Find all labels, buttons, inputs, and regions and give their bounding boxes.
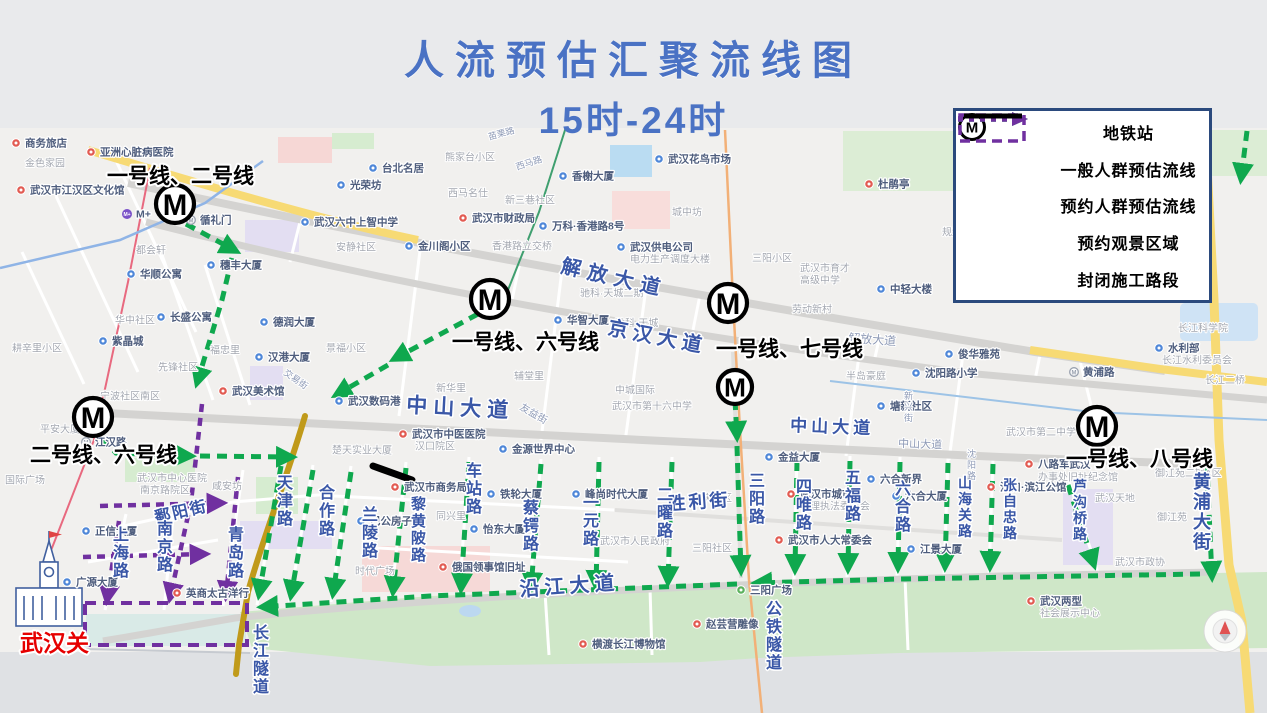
street-label: 四唯路 (796, 479, 813, 532)
street-label: 长江隧道 (253, 623, 270, 696)
station-line-label: 一号线、二号线 (107, 164, 254, 188)
street-label: 黄浦大街 (1192, 471, 1211, 552)
poi: 咸安坊 (212, 480, 242, 493)
poi: 武汉市人大常委会 (775, 534, 873, 547)
poi: 金色家园 (25, 157, 65, 170)
poi: 都会轩 (136, 244, 166, 257)
poi-label: 武汉市商务局 (404, 481, 467, 494)
poi-label: 沈阳路小学 (925, 367, 978, 380)
street-label: 新兴街 (904, 390, 913, 423)
poi: 武汉市第十六中学 (612, 400, 692, 413)
poi-label: 华智大厦 (567, 314, 609, 327)
poi: 汉口院区 (415, 440, 455, 453)
poi: 华中社区 (115, 314, 155, 327)
poi-label: 金色家园 (25, 157, 65, 170)
poi-label: 金益大厦 (777, 451, 820, 464)
street-label: 三阳路 (749, 473, 766, 526)
station-line-label: 一号线、七号线 (716, 337, 863, 361)
metro-entrance-m: M (1072, 370, 1077, 376)
poi-label: 俊华雅苑 (958, 348, 1000, 361)
poi-label: 宁波社区南区 (100, 390, 160, 403)
poi: 万科·香港路8号 (539, 220, 625, 233)
poi-label: 横渡长江博物馆 (592, 638, 666, 651)
poi-label: 台北名居 (382, 162, 424, 175)
street-label: 南京路 (157, 519, 174, 574)
poi: 长江科学院 (1178, 322, 1228, 335)
metro-station-marker: M (471, 280, 509, 318)
poi-label: 劳动新村 (792, 303, 832, 316)
poi-label: 都会轩 (136, 244, 166, 257)
poi: 武汉市中医医院 (399, 428, 486, 441)
metro-station-m: M (478, 284, 503, 317)
poi-label: 熊家台小区 (445, 151, 495, 164)
metro-station-m: M (716, 288, 741, 321)
poi-label: 三阳社区 (692, 542, 732, 555)
poi: 西马名仕 (448, 187, 488, 200)
poi: 三阳社区 (692, 542, 732, 555)
poi-label: 华中社区 (115, 314, 155, 327)
poi-label: 紫晶城 (112, 335, 144, 348)
legend-row-viewing-area: 预约观景区域 (961, 225, 1204, 259)
poi: 亚洲心脏病医院 (87, 146, 174, 159)
poi-label: 景福小区 (326, 342, 366, 355)
poi-label: 御江苑 (1157, 511, 1187, 524)
poi-label: 西马名仕 (448, 187, 488, 200)
poi-label: 香榭大厦 (571, 170, 614, 183)
street-label: 合作路 (319, 483, 336, 538)
poi: 先锋社区 (158, 361, 198, 374)
poi-label: 香港路立交桥 (492, 240, 552, 253)
poi: 安静社区 (336, 241, 376, 254)
poi: 武汉市政协 (1115, 556, 1165, 569)
poi-label: 华顺公寓 (140, 268, 182, 281)
poi-label: 半岛豪庭 (846, 370, 886, 383)
poi-label: 武汉供电公司 (630, 241, 693, 254)
poi-label: 长盛公寓 (170, 311, 212, 324)
poi-label: 武汉美术馆 (232, 385, 285, 398)
poi-label: 福忠里 (210, 344, 240, 357)
poi: 俄国领事馆旧址 (439, 561, 526, 574)
poi-label: 武汉市财政局 (472, 212, 535, 225)
legend-label: 预约观景区域 (1053, 230, 1204, 254)
metro-station-m: M (163, 189, 188, 222)
street-label: 山海关路 (958, 475, 973, 539)
poi: 社会展示中心 (1040, 607, 1100, 620)
compass-widget[interactable] (1204, 610, 1246, 652)
poi-label: 三阳广场 (750, 584, 792, 597)
poi: 福忠里 (210, 344, 240, 357)
poi-label: M+ (136, 209, 151, 221)
poi-label: 武汉数码港 (348, 395, 401, 408)
poi-label: 武汉两型 (1040, 595, 1082, 608)
street-label: 沈阳路 (967, 448, 976, 481)
poi: 高级中学 (800, 274, 840, 287)
poi-label: 国际广场 (5, 474, 45, 487)
poi: 横渡长江博物馆 (579, 638, 666, 651)
metro-station-m: M (1085, 411, 1110, 444)
poi: 新三巷社区 (505, 194, 555, 207)
poi: 城中坊 (672, 206, 702, 219)
poi-label: 中城国际 (615, 384, 655, 397)
metro-station-marker: M (1078, 407, 1116, 445)
poi-label: 时代广场 (355, 565, 395, 578)
poi-label: 怡东大厦 (483, 523, 525, 536)
poi-label: 武汉市第二中学 (1006, 426, 1076, 439)
poi: 武汉市中心医院 (137, 472, 207, 485)
slide-canvas: 武汉关 商务旅店金色家园亚洲心脏病医院武汉市江汉区文化馆都会轩华顺公寓长盛公寓华… (0, 0, 1267, 713)
poi: 武汉市第二中学 (1006, 426, 1076, 439)
poi-label: 长江科学院 (1178, 322, 1228, 335)
poi: 半岛豪庭 (846, 370, 886, 383)
poi-label: 武汉天地 (1095, 492, 1135, 505)
station-line-label: 二号线、六号线 (30, 443, 177, 467)
poi-label: 同兴里 (436, 511, 466, 523)
poi-label: 电力生产调度大楼 (630, 253, 710, 266)
street-label: 青岛路 (228, 525, 245, 580)
poi-label: 武汉市人大常委会 (788, 534, 872, 547)
poi-label: 亚洲心脏病医院 (100, 146, 174, 159)
poi-label: 水利部 (1167, 342, 1200, 355)
poi-label: 南京路院区 (140, 484, 190, 497)
legend-label: 封闭施工路段 (1053, 267, 1204, 291)
poi-label: 汉港大厦 (268, 351, 310, 364)
poi: 辅堂里 (514, 370, 544, 383)
poi-label: 长江二桥 (1205, 375, 1245, 387)
poi: 时代广场 (355, 565, 395, 578)
poi-label: 金川阁小区 (417, 240, 471, 253)
map-legend: M 地铁站 一般人群预估流线 预约人群预估流线 预约观景区域 封闭施工路段 (953, 108, 1212, 303)
poi-label: 辅堂里 (514, 370, 544, 383)
poi: 三阳小区 (752, 253, 792, 265)
poi: 御江苑 (1157, 511, 1187, 524)
street-label: 胜利街 (667, 489, 731, 514)
poi-label: 武汉市政协 (1115, 556, 1165, 569)
poi: 香港路立交桥 (492, 240, 552, 253)
poi-label: 黄浦路 (1083, 366, 1115, 379)
street-label: 黎黄陂路 (411, 495, 427, 564)
poi-label: 德润大厦 (272, 316, 315, 329)
poi-label: 英商太古洋行 (185, 587, 249, 600)
metro-station-m: M (81, 402, 106, 435)
street-label: 芦沟桥路 (1073, 478, 1088, 542)
metro-station-marker: M (709, 284, 747, 322)
poi-label: 咸安坊 (212, 480, 242, 493)
poi: 国际广场 (5, 474, 45, 487)
legend-label: 一般人群预估流线 (1053, 157, 1204, 181)
poi-label: 江景大厦 (920, 543, 962, 556)
poi-label: 三阳小区 (752, 253, 792, 265)
street-label: 六合路 (895, 479, 912, 534)
poi-label: 六合大厦 (905, 490, 947, 503)
metro-station-marker: M (74, 398, 112, 436)
poi: 武汉市育才 (800, 262, 850, 275)
poi-label: 汉口院区 (415, 440, 455, 453)
poi-label: 循礼门 (200, 214, 232, 227)
poi: 武汉天地 (1095, 492, 1135, 505)
poi: 楚天实业大厦 (332, 444, 392, 457)
poi-label: 武汉市中医医院 (412, 428, 486, 441)
legend-row-reserved-flow: 预约人群预估流线 (961, 188, 1204, 222)
poi-label: 高级中学 (800, 274, 840, 287)
station-line-label: 一号线、八号线 (1066, 447, 1213, 471)
poi-label: 先锋社区 (158, 361, 198, 374)
poi: 景福小区 (326, 342, 366, 355)
wuhan-customs-label: 武汉关 (20, 630, 89, 656)
street-label: 上海路 (113, 526, 130, 580)
poi: 长江水利委员会 (1162, 354, 1232, 367)
street-label: 中山大道 (790, 415, 875, 438)
poi-label: 安静社区 (336, 241, 376, 254)
poi-label: 武汉市中心医院 (137, 472, 207, 485)
poi: 长江二桥 (1205, 375, 1245, 387)
poi-label: 武汉市育才 (800, 262, 850, 275)
poi-label: 武汉花鸟市场 (668, 153, 731, 166)
street-label: 兰陵路 (362, 505, 379, 560)
poi-label: 新华里 (436, 382, 466, 395)
legend-row-construction: 封闭施工路段 (961, 262, 1204, 296)
poi: 电力生产调度大楼 (630, 253, 710, 266)
metro-station-m: M (724, 373, 746, 403)
poi-label: 穗丰大厦 (220, 259, 262, 272)
poi-label: 铁轮大厦 (500, 488, 542, 501)
poi-label: 武汉市第十六中学 (612, 400, 692, 413)
metro-station-marker: M (156, 185, 194, 223)
poi: 熊家台小区 (445, 151, 495, 164)
poi: 宁波社区南区 (100, 390, 160, 403)
poi: 劳动新村 (792, 303, 832, 316)
poi-label: 光荣坊 (349, 179, 382, 192)
poi-label: 新三巷社区 (505, 194, 555, 207)
legend-label: 地铁站 (1053, 120, 1204, 144)
poi-label: 楚天实业大厦 (332, 444, 392, 457)
street-label: 车站路 (466, 461, 483, 516)
poi: 耕辛里小区 (12, 342, 62, 355)
poi-label: 赵芸营雕像 (705, 618, 759, 631)
legend-label: 预约人群预估流线 (1053, 193, 1204, 217)
poi: 新华里 (436, 382, 466, 395)
street-label: 中山大道 (898, 436, 942, 452)
poi-label: 长江水利委员会 (1162, 354, 1232, 367)
street-label: 蔡锷路 (522, 498, 540, 553)
street-label: 天津路 (277, 475, 294, 528)
poi-label: 城中坊 (672, 206, 702, 219)
poi: M+M+ (122, 209, 151, 221)
poi: 中城国际 (615, 384, 655, 397)
metro-station-marker: M (718, 370, 752, 404)
poi-label: 社会展示中心 (1040, 607, 1100, 620)
poi: 同兴里 (436, 511, 466, 523)
poi-label: 中轻大楼 (890, 283, 932, 296)
street-label: 张自忠路 (1003, 477, 1018, 541)
street-label: 二曜路 (657, 487, 674, 540)
metro-exit-mplus: M+ (123, 212, 130, 218)
poi-label: 武汉六中上智中学 (314, 216, 398, 229)
station-line-label: 一号线、六号线 (452, 330, 599, 354)
poi-label: 万科·香港路8号 (551, 220, 624, 233)
poi: 武汉六中上智中学 (301, 216, 399, 229)
street-label: 五福路 (844, 470, 862, 523)
legend-row-general-flow: 一般人群预估流线 (961, 152, 1204, 186)
poi: 南京路院区 (140, 484, 190, 497)
page-title: 人流预估汇聚流线图 (0, 28, 1267, 86)
poi-label: 杜鹃亭 (878, 178, 910, 191)
poi-label: 金源世界中心 (511, 443, 575, 456)
poi-label: 俄国领事馆旧址 (451, 561, 526, 574)
poi-label: 耕辛里小区 (12, 342, 62, 355)
street-label: 一元路 (583, 495, 600, 548)
